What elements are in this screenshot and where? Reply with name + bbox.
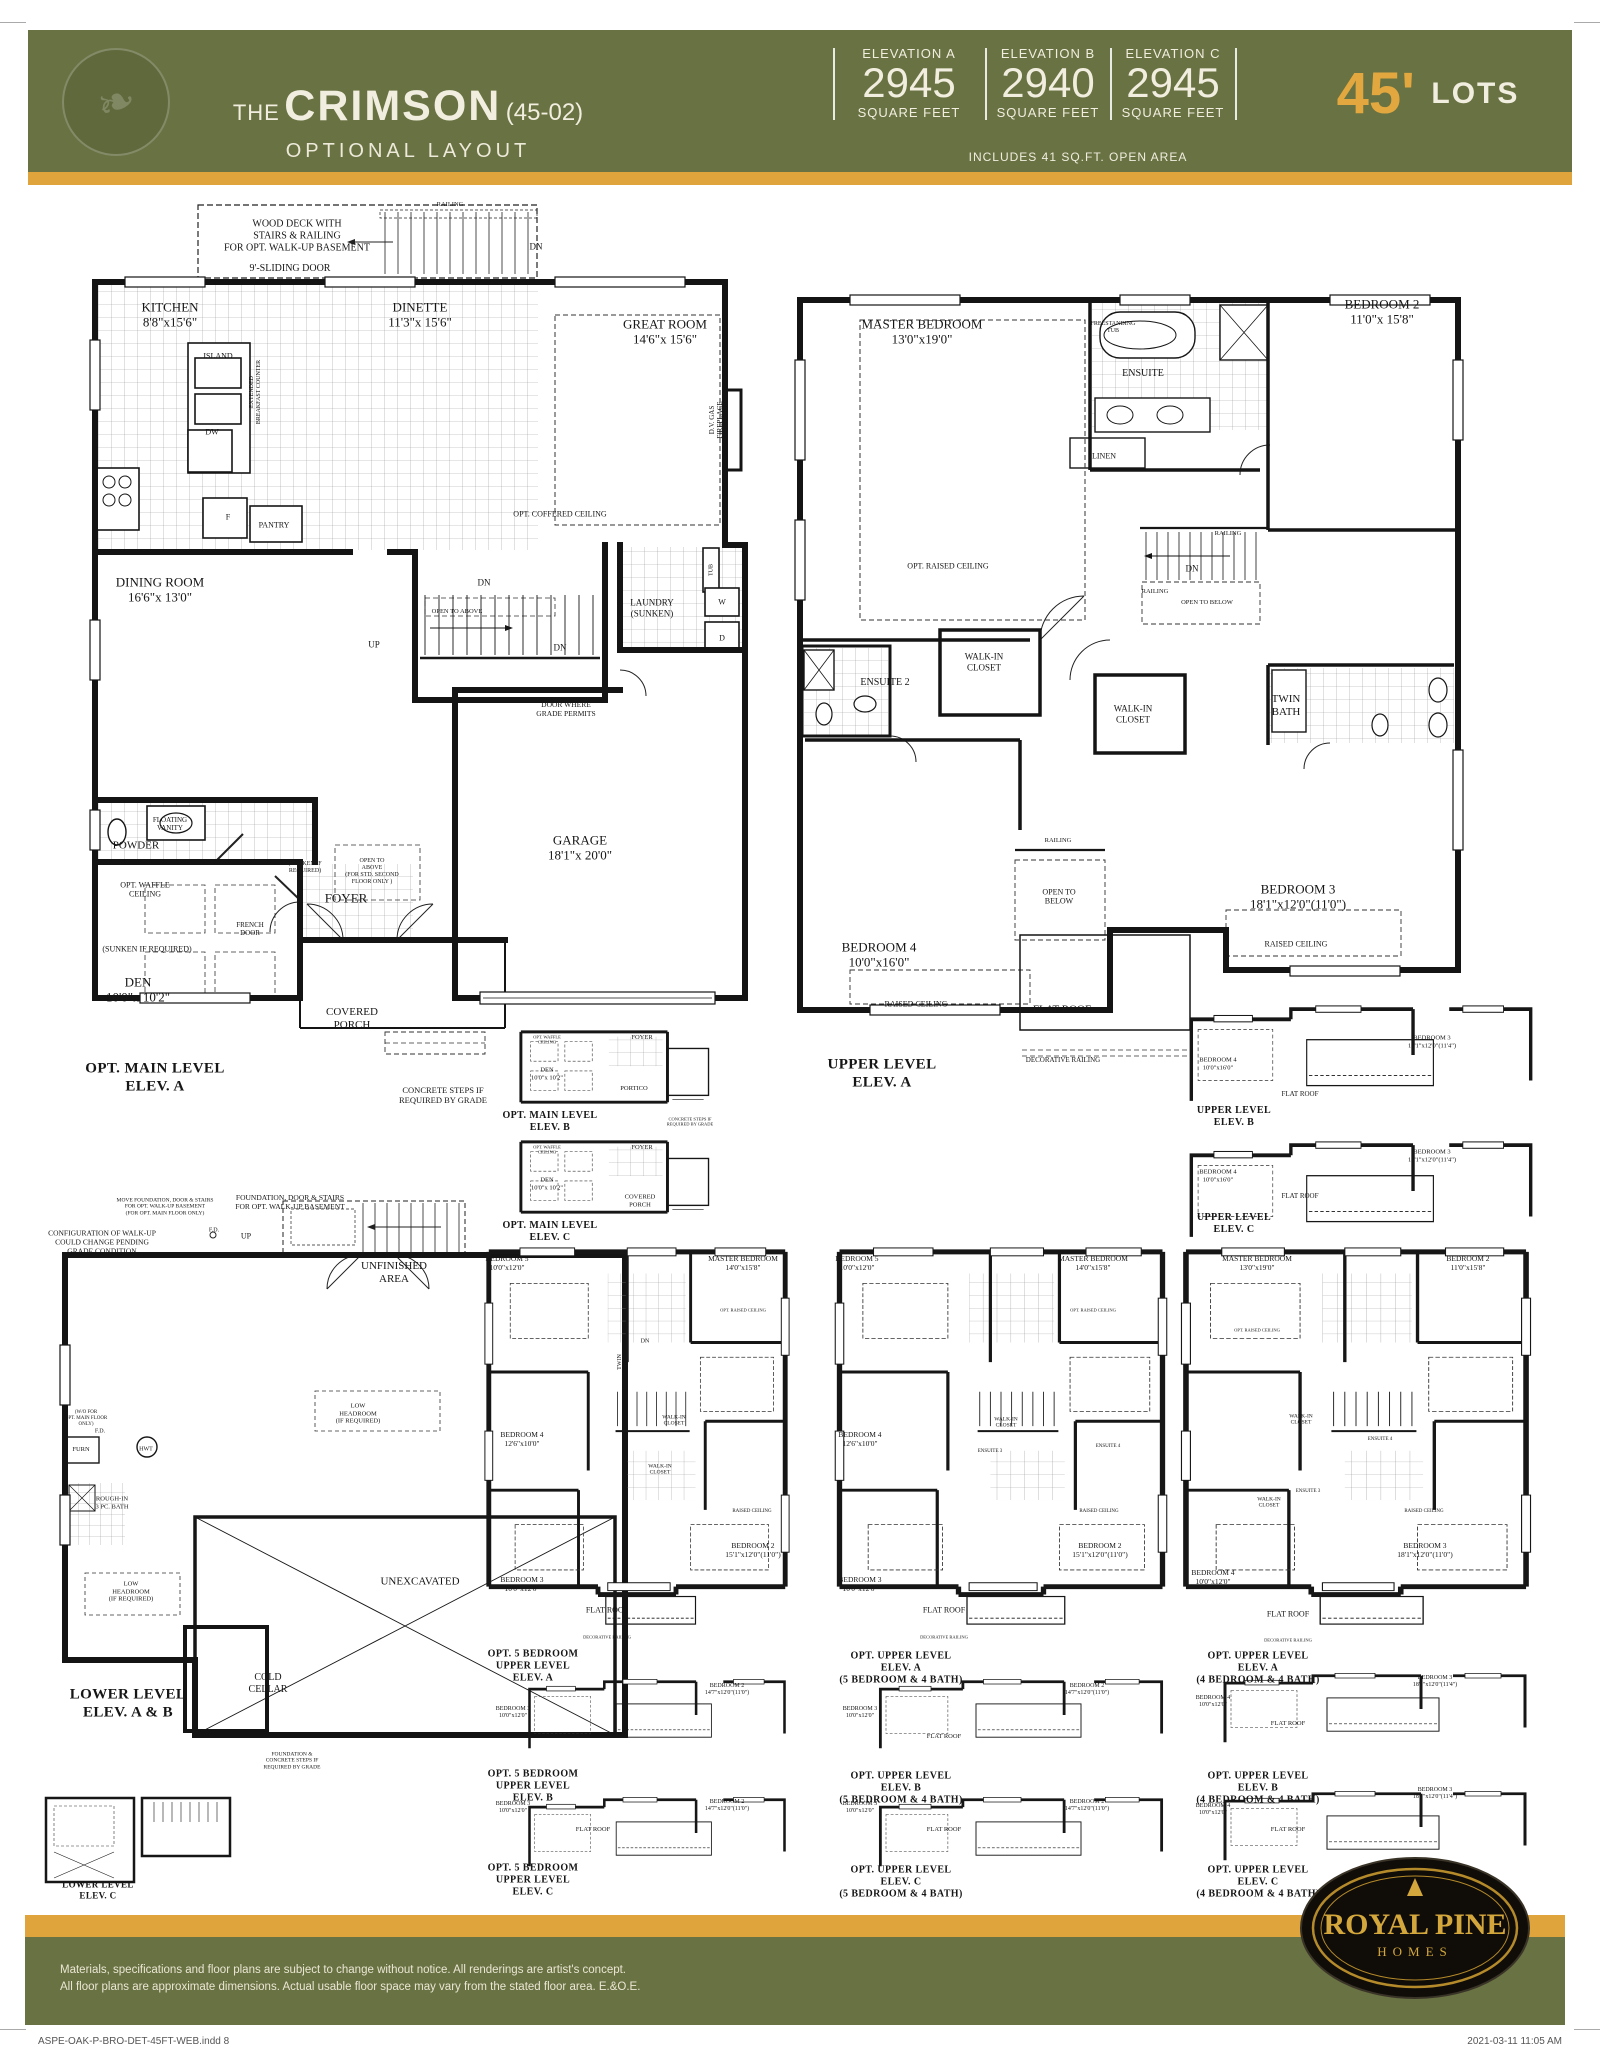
opt5-upper-elevB-drawing [521,1678,793,1752]
plan-title-upper-level-b: UPPER LEVEL ELEV. B [1197,1105,1271,1129]
crop-mark [0,22,26,23]
model-code: (45-02) [506,99,583,126]
plan-label: CONCRETE STEPS IF REQUIRED BY GRADE [667,1117,714,1128]
elevation-a-unit: SQUARE FEET [834,105,984,120]
lot-size-word: LOTS [1431,77,1519,110]
page-subtitle: OPTIONAL LAYOUT [178,140,638,163]
builder-logo: ❧ [62,48,170,156]
opt5-upper-elevC-drawing [521,1796,793,1870]
lower-level-thumb-drawing [38,1792,238,1904]
opt44-upper-elevC-drawing [1215,1790,1535,1864]
crop-mark [1574,2029,1600,2030]
disclaimer-line2: All floor plans are approximate dimensio… [60,1979,1160,1996]
upper-level-floorplan-drawing [790,270,1470,1090]
main-level-thumb-c-drawing [516,1136,731,1221]
model-name: CRIMSON [284,82,501,130]
opt54-upper-elevA-drawing [831,1244,1171,1630]
open-area-note: INCLUDES 41 SQ.FT. OPEN AREA [928,150,1228,164]
elevation-c-stat: ELEVATION C 2945 SQUARE FEET [1098,46,1248,120]
crop-mark [0,2029,26,2030]
oak-leaf-icon: ❧ [91,74,142,130]
logo-text-royal-pine: ROYAL PINE [1323,1908,1506,1941]
elevation-a-sqft: 2945 [834,61,984,105]
lot-size-badge: 45' LOTS [1268,60,1588,127]
elevation-c-sqft: 2945 [1098,61,1248,105]
main-level-thumb-b-drawing [516,1026,731,1111]
lot-size-number: 45' [1337,61,1415,126]
royal-pine-homes-logo: ROYAL PINE HOMES [1298,1856,1532,2000]
header-band: ❧ THE CRIMSON (45-02) OPTIONAL LAYOUT EL… [28,30,1572,172]
disclaimer-line1: Materials, specifications and floor plan… [60,1962,1160,1979]
opt54-upper-elevB-drawing [871,1678,1171,1752]
logo-text-homes: HOMES [1377,1944,1453,1959]
print-timestamp: 2021-03-11 11:05 AM [1467,2036,1562,2047]
plan-label: DECORATIVE RAILING [920,1634,968,1639]
crop-mark [1574,22,1600,23]
upper-level-thumb-c-drawing [1180,1140,1542,1242]
main-level-floorplan-drawing [85,200,755,1100]
opt5-upper-elevA-drawing [481,1244,793,1630]
elevation-c-unit: SQUARE FEET [1098,105,1248,120]
title-prefix: THE [233,100,280,125]
opt44-upper-elevA-drawing [1177,1244,1535,1630]
plan-title-main-level-b: OPT. MAIN LEVEL ELEV. B [503,1110,598,1134]
brochure-page: ❧ THE CRIMSON (45-02) OPTIONAL LAYOUT EL… [0,0,1600,2055]
opt44-upper-elevB-drawing [1215,1672,1535,1746]
plan-label: DECORATIVE RAILING [1264,1637,1312,1642]
print-file-info: ASPE-OAK-P-BRO-DET-45FT-WEB.indd 8 [38,2036,229,2047]
opt54-upper-elevC-drawing [871,1796,1171,1870]
upper-level-thumb-b-drawing [1180,1004,1542,1106]
page-title: THE CRIMSON (45-02) [178,82,638,131]
disclaimer: Materials, specifications and floor plan… [60,1962,1160,1997]
plan-title-block: THE CRIMSON (45-02) OPTIONAL LAYOUT [178,82,638,163]
elevation-a-stat: ELEVATION A 2945 SQUARE FEET [834,46,984,120]
header-gold-bar [28,172,1572,185]
